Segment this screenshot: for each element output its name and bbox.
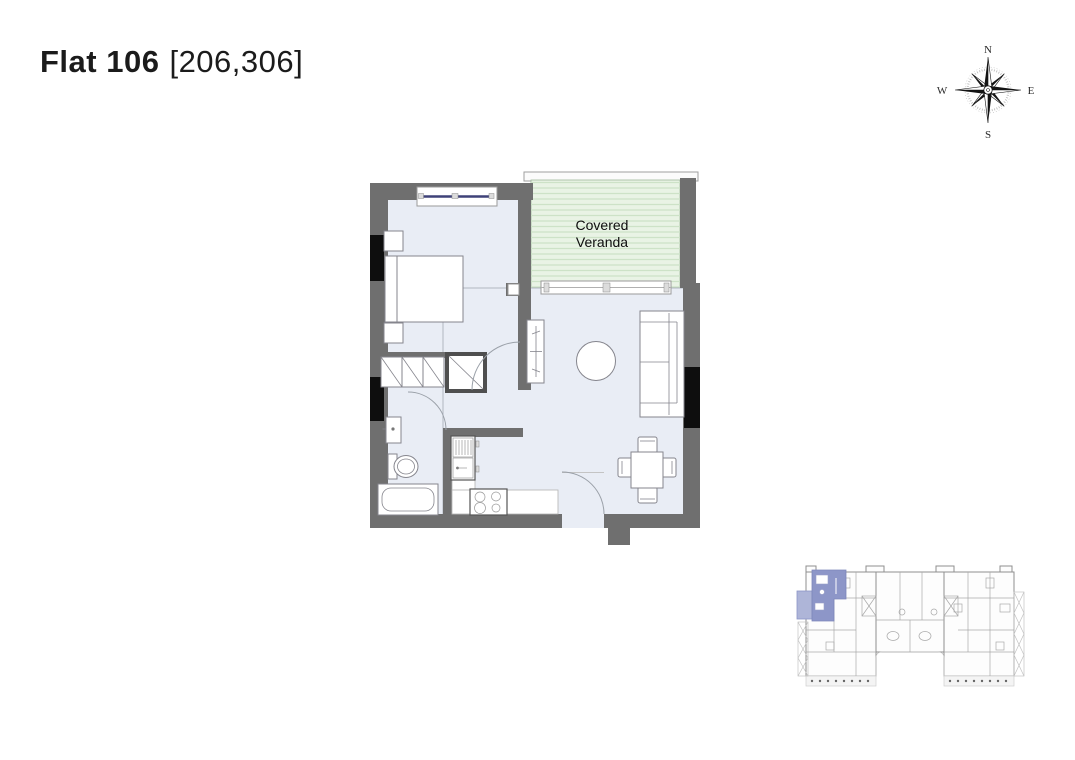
dining-chair xyxy=(638,487,657,503)
bed xyxy=(397,256,463,322)
tv-unit xyxy=(527,320,544,383)
floor-plan: Covered Veranda xyxy=(370,172,700,545)
veranda-label-line1: Covered xyxy=(576,217,629,233)
sofa xyxy=(640,311,684,417)
veranda-label-line2: Veranda xyxy=(576,234,628,250)
entrance-stub xyxy=(608,528,630,545)
dining-table xyxy=(631,452,663,488)
nightstand-top xyxy=(384,231,403,251)
plan-canvas: Covered Veranda N E S W xyxy=(0,0,1075,760)
bedroom-window xyxy=(417,187,497,206)
entrance-floor xyxy=(561,513,605,528)
stove xyxy=(470,489,507,515)
dining-chair xyxy=(638,437,657,453)
compass-west-label: W xyxy=(937,85,948,97)
flat-plan-page: Flat 106[206,306] xyxy=(0,0,1075,760)
courtyard-edge xyxy=(876,652,944,676)
compass-north-label: N xyxy=(984,44,992,56)
balcony-strips xyxy=(806,676,1014,686)
compass-south-label: S xyxy=(985,129,991,141)
highlighted-unit-veranda xyxy=(797,591,812,619)
nightstand-bottom xyxy=(384,323,403,343)
toilet xyxy=(388,454,418,479)
compass-rose: N E S W xyxy=(937,44,1035,141)
compass-east-label: E xyxy=(1028,85,1035,97)
kitchen-sink xyxy=(451,436,479,480)
bathtub xyxy=(378,484,438,515)
key-plan xyxy=(797,566,1024,686)
bed-headboard xyxy=(385,256,397,322)
wardrobe xyxy=(381,354,485,391)
round-table xyxy=(577,342,616,381)
